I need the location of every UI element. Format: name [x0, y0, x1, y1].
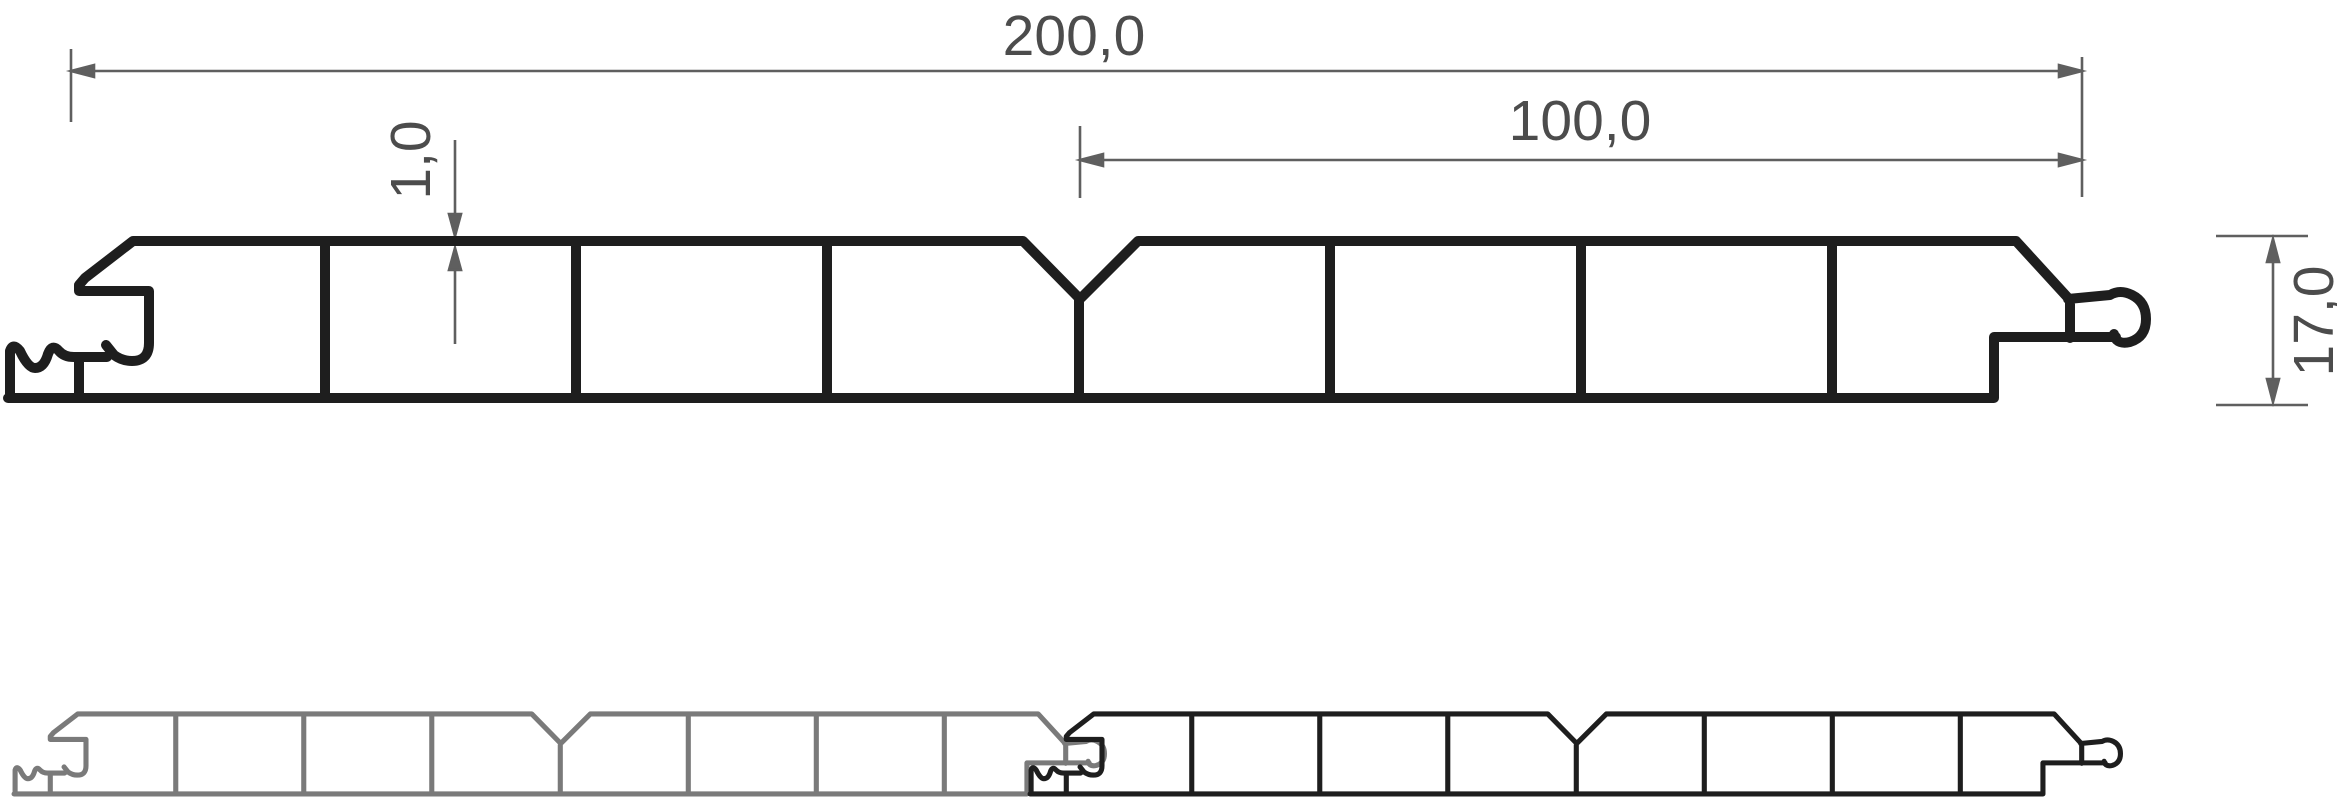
technical-drawing-page: 200,0 100,0 1,0: [0, 0, 2337, 800]
arrowhead-up-icon: [449, 248, 461, 270]
main-profile-outline: [8, 241, 2146, 398]
arrowhead-up-icon: [2267, 239, 2279, 262]
arrowhead-left-icon: [71, 65, 94, 77]
arrowhead-down-icon: [2267, 379, 2279, 402]
arrowhead-right-icon: [2059, 65, 2082, 77]
small-profile-left-gray: [14, 714, 1104, 794]
dimension-total-width: [71, 49, 2082, 197]
small-profile-right-black: [1030, 714, 2120, 794]
arrowhead-down-icon: [449, 214, 461, 236]
dimension-label-height: 17,0: [2282, 266, 2337, 377]
arrowhead-left-icon: [1080, 154, 1103, 166]
dimension-label-total-width: 200,0: [1003, 4, 1146, 68]
profile-cross-section-drawing: 200,0 100,0 1,0: [0, 0, 2337, 800]
dimension-label-wall-thickness: 1,0: [379, 120, 443, 199]
arrowhead-right-icon: [2059, 154, 2082, 166]
dimension-label-half-width: 100,0: [1509, 89, 1652, 153]
